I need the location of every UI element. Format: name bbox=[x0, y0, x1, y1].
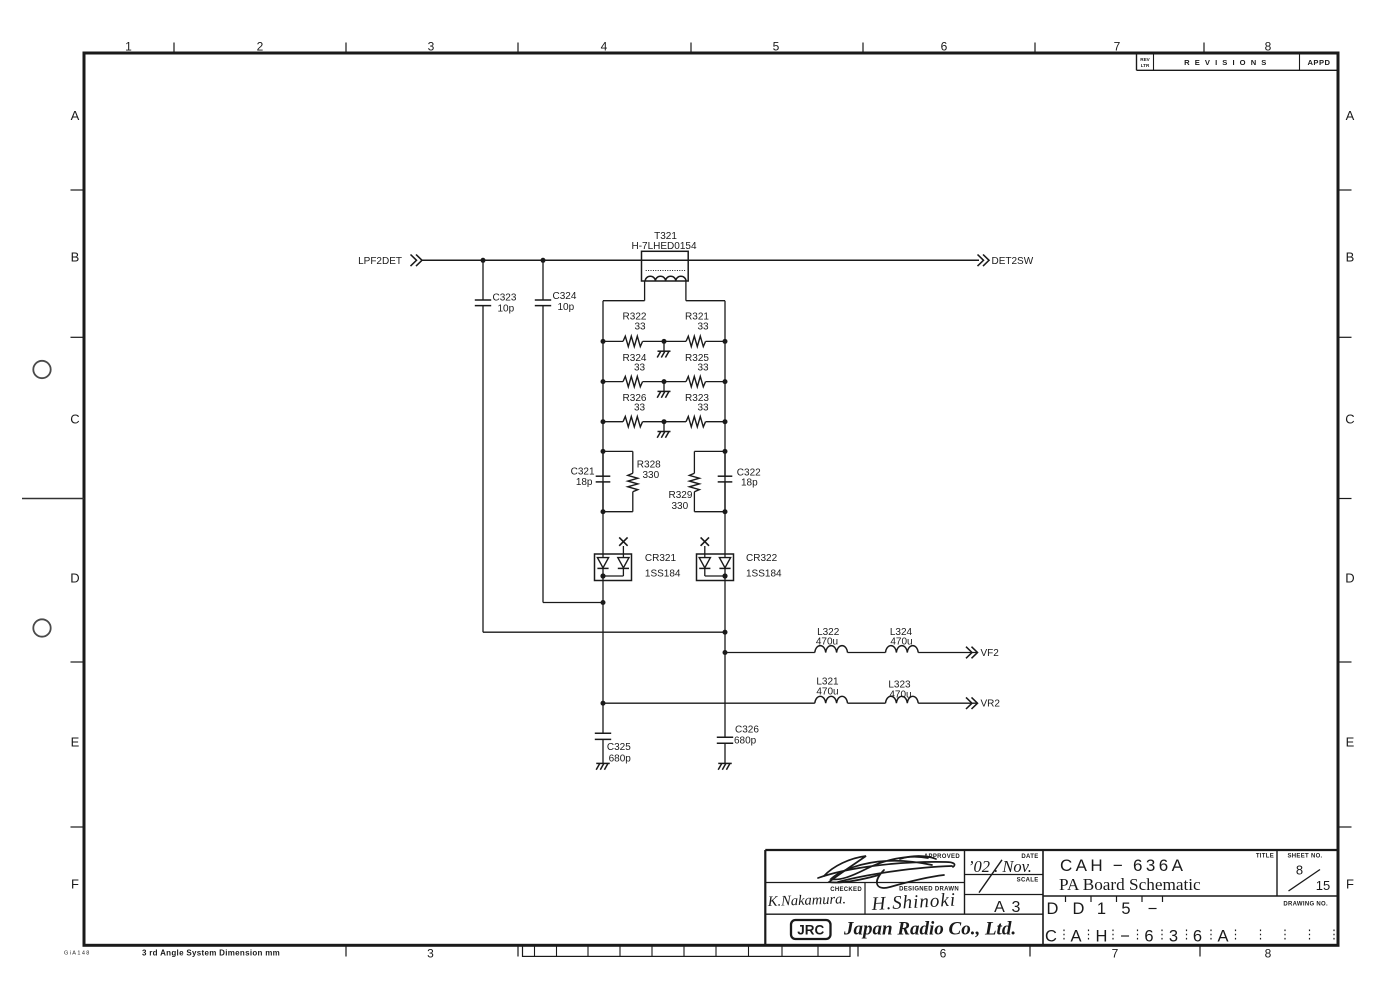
svg-text:C: C bbox=[1345, 412, 1354, 427]
svg-text:H: H bbox=[1096, 927, 1108, 945]
svg-text:C: C bbox=[70, 412, 79, 427]
svg-text:TITLE: TITLE bbox=[1256, 854, 1274, 860]
svg-text:VF2: VF2 bbox=[981, 648, 1000, 659]
svg-text:−: − bbox=[1148, 900, 1158, 918]
svg-text:8: 8 bbox=[1296, 863, 1303, 878]
svg-text:3 rd Angle System Dimension m: 3 rd Angle System Dimension mm bbox=[142, 948, 280, 957]
svg-text:VR2: VR2 bbox=[981, 699, 1001, 710]
svg-text:33: 33 bbox=[697, 403, 709, 414]
svg-text:GiA148: GiA148 bbox=[64, 951, 91, 957]
svg-text:A: A bbox=[1217, 927, 1228, 945]
svg-text:470u: 470u bbox=[890, 636, 912, 647]
svg-text:33: 33 bbox=[697, 363, 709, 374]
svg-text:18p: 18p bbox=[741, 478, 758, 489]
svg-text:PA Board Schematic: PA Board Schematic bbox=[1059, 875, 1201, 894]
svg-text:33: 33 bbox=[697, 322, 709, 333]
svg-text:R E V I S I O N S: R E V I S I O N S bbox=[1184, 58, 1268, 67]
svg-text:DRAWING NO.: DRAWING NO. bbox=[1283, 902, 1328, 908]
svg-text:5: 5 bbox=[1121, 900, 1130, 918]
svg-text:7: 7 bbox=[1112, 947, 1119, 961]
svg-text:C324: C324 bbox=[553, 291, 577, 302]
svg-text:K.Nakamura.: K.Nakamura. bbox=[767, 891, 847, 910]
svg-text:D: D bbox=[1345, 571, 1354, 586]
svg-text:Japan Radio Co., Ltd.: Japan Radio Co., Ltd. bbox=[843, 919, 1016, 940]
svg-text:C325: C325 bbox=[607, 742, 631, 753]
svg-text:1: 1 bbox=[125, 39, 132, 53]
svg-text:5: 5 bbox=[773, 39, 780, 53]
svg-text:680p: 680p bbox=[609, 754, 632, 765]
svg-text:15: 15 bbox=[1316, 878, 1330, 893]
svg-text:A: A bbox=[1070, 927, 1081, 945]
svg-text:C326: C326 bbox=[735, 725, 759, 736]
svg-text:LTR: LTR bbox=[1141, 63, 1150, 68]
svg-text:DET2SW: DET2SW bbox=[992, 256, 1034, 267]
svg-text:H-7LHED0154: H-7LHED0154 bbox=[631, 241, 696, 252]
svg-text:33: 33 bbox=[634, 403, 646, 414]
svg-text:’02 . Nov.: ’02 . Nov. bbox=[968, 857, 1032, 876]
svg-text:8: 8 bbox=[1265, 39, 1272, 53]
svg-text:6: 6 bbox=[1193, 927, 1202, 945]
svg-text:33: 33 bbox=[634, 363, 646, 374]
svg-text:3: 3 bbox=[427, 947, 434, 961]
svg-text:B: B bbox=[1346, 250, 1355, 265]
svg-text:7: 7 bbox=[1114, 39, 1121, 53]
svg-text:C321: C321 bbox=[571, 467, 595, 478]
svg-text:D: D bbox=[1073, 900, 1085, 918]
svg-text:B: B bbox=[71, 250, 80, 265]
svg-text:6: 6 bbox=[941, 39, 948, 53]
svg-text:SHEET NO.: SHEET NO. bbox=[1287, 854, 1322, 860]
svg-text:−: − bbox=[1120, 927, 1130, 945]
svg-text:2: 2 bbox=[257, 39, 264, 53]
svg-text:A: A bbox=[1346, 108, 1355, 123]
svg-text:3: 3 bbox=[1012, 899, 1021, 916]
svg-text:4: 4 bbox=[601, 39, 608, 53]
svg-text:3: 3 bbox=[428, 39, 435, 53]
svg-text:6: 6 bbox=[940, 947, 947, 961]
svg-text:LPF2DET: LPF2DET bbox=[358, 256, 402, 267]
svg-text:H.Shinoki: H.Shinoki bbox=[870, 890, 956, 915]
svg-text:33: 33 bbox=[634, 322, 646, 333]
svg-text:330: 330 bbox=[672, 501, 689, 512]
svg-text:R329: R329 bbox=[669, 490, 693, 501]
svg-text:CR321: CR321 bbox=[645, 553, 677, 564]
svg-text:470u: 470u bbox=[816, 687, 838, 698]
svg-text:C: C bbox=[1045, 927, 1057, 945]
svg-text:470u: 470u bbox=[816, 636, 838, 647]
svg-text:E: E bbox=[1346, 735, 1355, 750]
svg-text:6: 6 bbox=[1144, 927, 1153, 945]
svg-text:SCALE: SCALE bbox=[1017, 877, 1039, 883]
svg-text:F: F bbox=[71, 877, 79, 892]
svg-text:A: A bbox=[994, 899, 1005, 916]
svg-text:18p: 18p bbox=[576, 477, 593, 488]
svg-text:470u: 470u bbox=[889, 689, 911, 700]
svg-text:1: 1 bbox=[1097, 900, 1106, 918]
svg-text:10p: 10p bbox=[498, 304, 515, 315]
svg-text:APPD: APPD bbox=[1307, 58, 1330, 67]
svg-text:REV: REV bbox=[1140, 57, 1150, 62]
svg-text:1SS184: 1SS184 bbox=[645, 569, 681, 580]
svg-text:330: 330 bbox=[643, 470, 660, 481]
svg-text:1SS184: 1SS184 bbox=[746, 569, 782, 580]
svg-text:CR322: CR322 bbox=[746, 553, 778, 564]
svg-text:680p: 680p bbox=[734, 735, 757, 746]
svg-text:CAH − 636A: CAH − 636A bbox=[1060, 856, 1186, 875]
svg-text:JRC: JRC bbox=[797, 922, 824, 937]
svg-text:3: 3 bbox=[1169, 927, 1178, 945]
svg-text:D: D bbox=[1047, 900, 1059, 918]
svg-text:F: F bbox=[1346, 877, 1354, 892]
svg-text:A: A bbox=[71, 108, 80, 123]
svg-text:10p: 10p bbox=[558, 302, 575, 313]
svg-text:C323: C323 bbox=[493, 293, 517, 304]
svg-text:E: E bbox=[71, 735, 80, 750]
svg-text:8: 8 bbox=[1265, 947, 1272, 961]
svg-text:D: D bbox=[70, 571, 79, 586]
svg-text:R328: R328 bbox=[637, 460, 661, 471]
